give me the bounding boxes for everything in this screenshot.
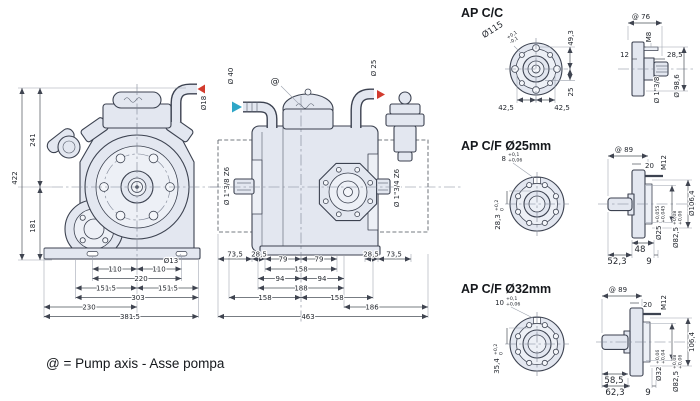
- pump-front-body: [44, 85, 205, 260]
- cc-flange-front: [505, 38, 568, 102]
- dim-28-3-tol-top: +0,2: [494, 200, 500, 211]
- dim-48: 48: [635, 245, 646, 255]
- dim-foot-slot-diameter: Ø13: [164, 257, 178, 265]
- dim-186: 186: [365, 304, 379, 312]
- dim-flange-115: Ø115: [480, 19, 505, 41]
- cf32-flange-front: [505, 312, 569, 376]
- dim-82-5-tol-bottom: +0,06: [677, 211, 683, 225]
- dim-303: 303: [131, 294, 144, 302]
- pump-technical-drawing: 422 241 181 Ø18 Ø13 110 110 220 151.5 15…: [0, 0, 700, 401]
- dim-overall-height: 422: [11, 171, 19, 184]
- dim-outlet-diameter: Ø18: [200, 96, 208, 110]
- dim-82-5: Ø82,5: [672, 371, 680, 392]
- pump-dimension-drawing-page: 422 241 181 Ø18 Ø13 110 110 220 151.5 15…: [0, 0, 700, 401]
- dim-230: 230: [82, 304, 95, 312]
- dim-key10-tol-bottom: +0,06: [506, 302, 520, 308]
- dim-106-4: Ø106,4: [688, 190, 696, 216]
- dim-axis-to-top: 241: [29, 133, 37, 146]
- dim-73-5-left: 73,5: [227, 251, 243, 259]
- option-ap-cf32-group: AP C/F Ø32mm 10 +0,1 +0,06 35,4 +0,2 0: [461, 282, 696, 398]
- dim-spline-shaft-left: Ø 1"3/8 Z6: [223, 166, 231, 205]
- dim-49-3: 49,3: [567, 30, 575, 46]
- dim-82-5-tol-top: +0,08: [672, 355, 678, 369]
- option-cf32-title: AP C/F Ø32mm: [461, 282, 551, 296]
- dim-52-3: 52,3: [607, 257, 626, 267]
- dim-m12-stud: M12: [660, 155, 668, 170]
- dim-28-3: 28,3: [494, 214, 502, 230]
- dim-28-5-right: 28,5: [363, 251, 379, 259]
- dim-shaft-25: Ø25: [655, 226, 663, 240]
- dim-key-10: 10: [495, 299, 504, 307]
- dim-axis-to-base: 181: [29, 219, 37, 232]
- dim-110-left: 110: [108, 266, 121, 274]
- pump-axis-symbol: @: [271, 77, 280, 87]
- dim-82-5-tol-bottom: +0,06: [677, 355, 683, 369]
- dim-axis-89: @ 89: [615, 146, 633, 154]
- dim-12: 12: [620, 51, 629, 59]
- dim-suction-diameter: Ø 40: [227, 68, 235, 85]
- dim-20: 20: [645, 162, 654, 170]
- dim-28-3-tol-bottom: 0: [499, 208, 505, 211]
- dim-axis-89: @ 89: [609, 286, 627, 294]
- dim-key8-tol-bottom: +0,06: [508, 158, 522, 164]
- dim-m12-stud: M12: [660, 295, 668, 310]
- dim-151-5-left: 151.5: [96, 285, 116, 293]
- dim-cc-spline: Ø 1"3/8: [653, 77, 661, 104]
- dim-58-5: 58,5: [604, 376, 623, 386]
- dim-20: 20: [643, 301, 652, 309]
- dim-9: 9: [646, 257, 651, 267]
- dim-42-5-left: 42,5: [498, 104, 514, 112]
- dim-32-tol-top: +0,06: [655, 350, 661, 364]
- dim-151-5-right: 151.5: [158, 285, 178, 293]
- dim-73-5-right: 73,5: [386, 251, 402, 259]
- dim-110-right: 110: [152, 266, 165, 274]
- dim-94-left: 94: [276, 275, 285, 283]
- dim-key-8: 8: [502, 155, 506, 163]
- suction-flow-arrow-icon: [232, 102, 242, 113]
- dim-axis-76: @ 76: [632, 13, 651, 21]
- dim-158-left: 158: [258, 294, 271, 302]
- dim-shaft-32: Ø32: [655, 367, 663, 381]
- side-view-group: @ Ø 40 Ø 25 Ø 1"3/8 Z6 Ø 1"3/4 Z6 73,5 2…: [210, 60, 462, 322]
- dim-delivery-diameter: Ø 25: [370, 60, 378, 77]
- cf25-flange-front: [505, 172, 569, 236]
- dim-62-3: 62,3: [605, 388, 624, 398]
- dim-spline-shaft-right: Ø 1"3/4 Z6: [393, 168, 401, 207]
- dim-98-6: Ø 98,6: [673, 74, 681, 98]
- delivery-flow-arrow-icon: [377, 90, 385, 99]
- dim-220: 220: [134, 275, 147, 283]
- dim-463-overall: 463: [301, 313, 314, 321]
- dim-381-5: 381.5: [120, 313, 140, 321]
- option-ap-cc-group: AP C/C Ø115 +0,1 -0,1 49,3 25: [461, 6, 696, 112]
- option-cf25-title: AP C/F Ø25mm: [461, 139, 551, 153]
- pump-axis-footnote: @ = Pump axis - Asse pompa: [46, 356, 225, 371]
- dim-188: 188: [294, 285, 307, 293]
- dim-9: 9: [645, 388, 650, 398]
- dim-32-tol-bottom: +0,04: [660, 350, 666, 364]
- delivery-flow-arrow-icon: [198, 85, 206, 94]
- dim-158-top: 158: [294, 266, 307, 274]
- dim-35-4-tol-top: +0,2: [493, 344, 499, 355]
- dim-key8-tol-top: +0,1: [508, 152, 519, 158]
- dim-94-right: 94: [318, 275, 327, 283]
- dim-106-4: 106,4: [688, 331, 696, 352]
- option-ap-cf25-group: AP C/F Ø25mm 8 +0,1 +0,06 28,3 +0,2 0: [461, 139, 696, 267]
- option-cc-title: AP C/C: [461, 6, 503, 20]
- dim-25-tol-bottom: +0,045: [660, 206, 666, 223]
- dim-key10-tol-top: +0,1: [506, 296, 517, 302]
- dim-82-5-tol-top: +0,08: [672, 211, 678, 225]
- dim-158-right: 158: [330, 294, 343, 302]
- dim-42-5-right: 42,5: [554, 104, 570, 112]
- dim-m8-stud: M8: [645, 32, 653, 43]
- dim-35-4: 35,4: [493, 358, 501, 374]
- dim-25-tol-top: +0,055: [655, 206, 661, 223]
- dim-25: 25: [567, 88, 575, 97]
- dim-82-5: Ø82,5: [672, 227, 680, 248]
- dim-79-right: 79: [315, 256, 324, 264]
- dim-79-left: 79: [279, 256, 288, 264]
- dim-28-5: 28,5: [667, 51, 683, 59]
- dim-28-5-left: 28,5: [251, 251, 267, 259]
- front-view-group: 422 241 181 Ø18 Ø13 110 110 220 151.5 15…: [11, 84, 224, 321]
- dim-35-4-tol-bottom: 0: [498, 352, 504, 355]
